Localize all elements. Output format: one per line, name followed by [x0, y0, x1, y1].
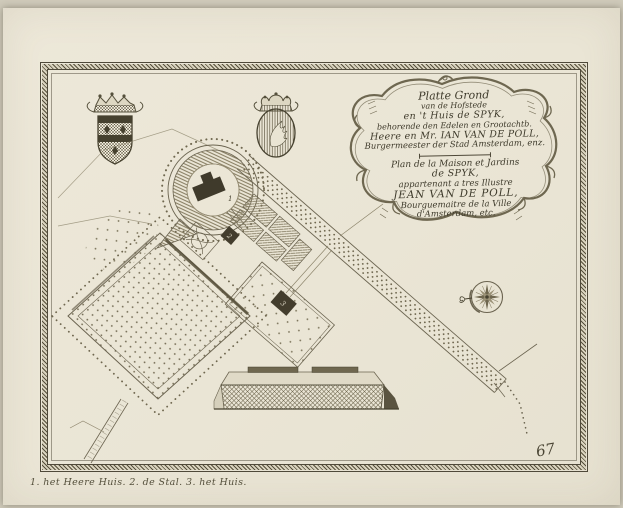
legend-caption: 1. het Heere Huis. 2. de Stal. 3. het Hu… [30, 477, 247, 488]
plate-number: 67 [535, 439, 557, 460]
cartouche: Platte Grond van de Hofstede en 't Huis … [354, 88, 557, 222]
cartouche-line: Burgermeester der Stad Amsterdam, enz. [355, 139, 555, 153]
cartouche-divider [419, 154, 491, 157]
engraving-scan: 1 [0, 0, 623, 508]
